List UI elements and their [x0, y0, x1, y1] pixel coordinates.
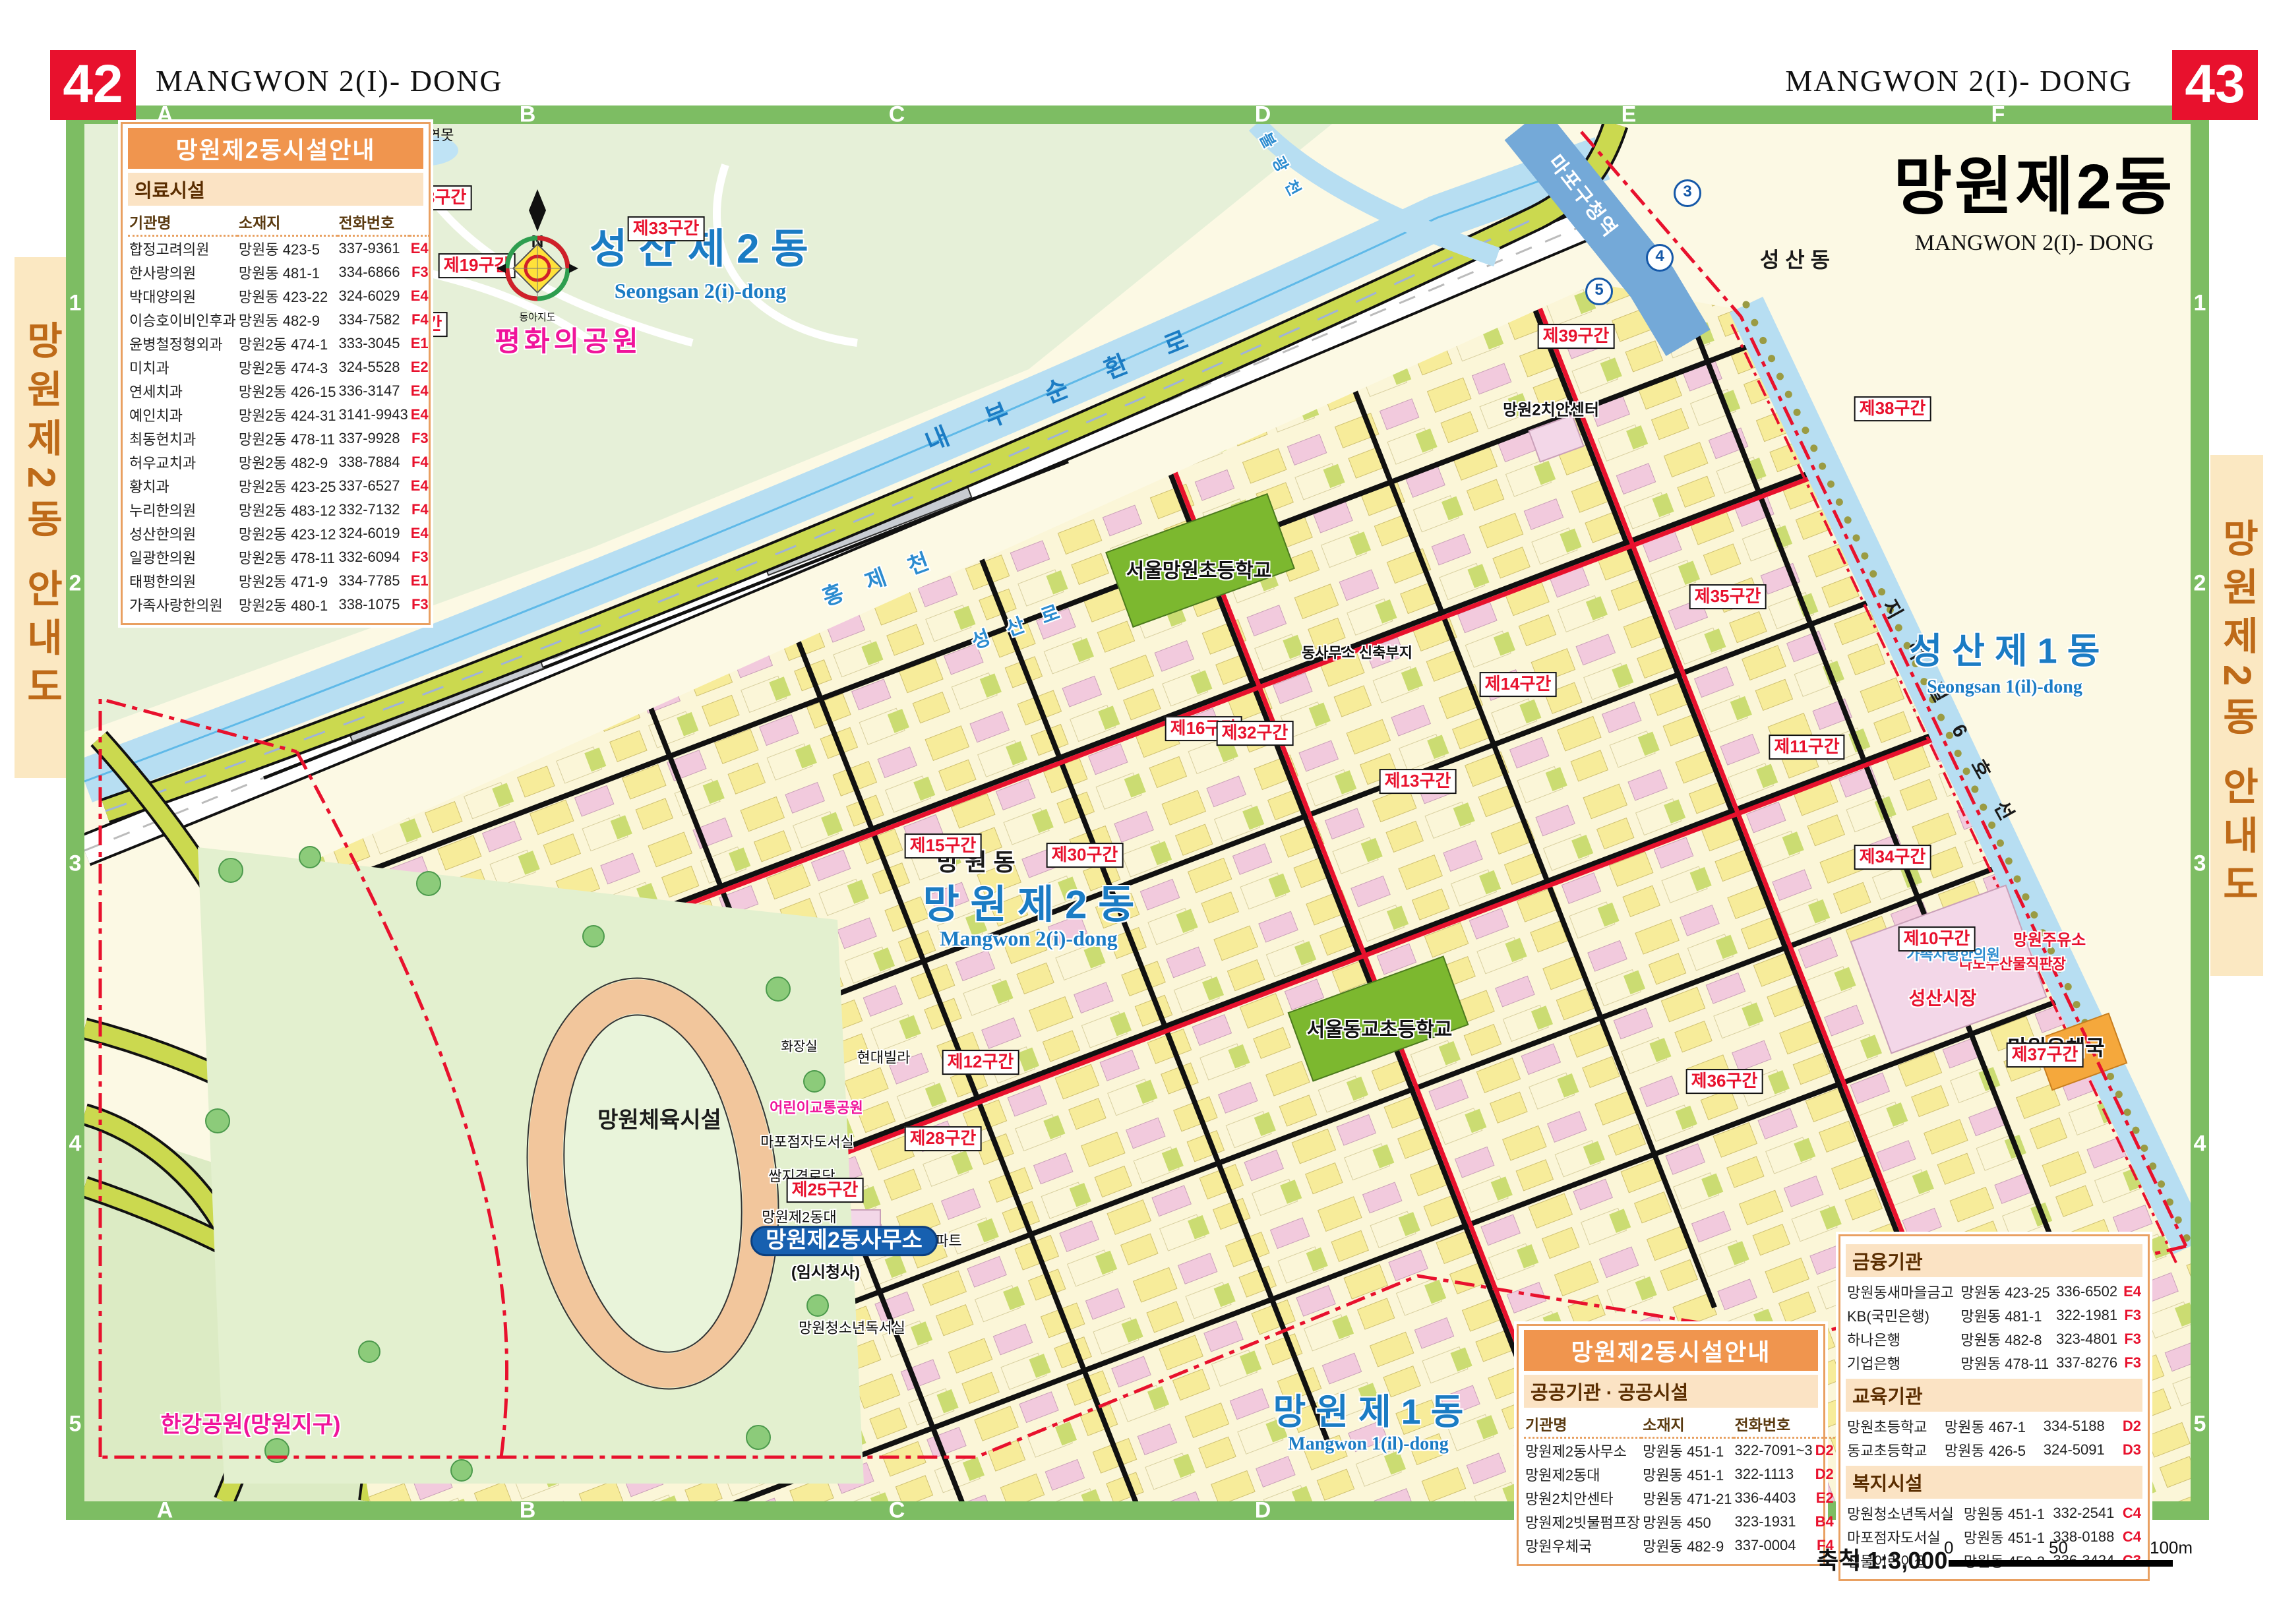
grid-ref: D3 [2117, 1438, 2142, 1462]
grid-col-label: C [889, 102, 905, 128]
facility-row: 망원2치안센타망원동 471-21336-4403E2 [1524, 1486, 1835, 1510]
facility-address: 망원2동 423-25 [237, 474, 338, 498]
section-range-marker: 제39구간 [1538, 324, 1615, 349]
public-facilities-table: 망원제2동시설안내공공기관 · 공공시설기관명소재지전화번호망원제2동사무소망원… [1517, 1324, 1825, 1566]
grid-ref: E4 [409, 236, 430, 261]
grid-row-label: 1 [69, 291, 82, 316]
grid-ref: D2 [1814, 1438, 1835, 1463]
grid-ref: F3 [409, 545, 430, 569]
facility-section-header: 공공기관 · 공공시설 [1524, 1375, 1818, 1408]
left-page-number: 42 [50, 50, 136, 120]
facility-address: 망원2동 423-12 [237, 522, 338, 545]
facility-name: 이승호이비인후과 [128, 308, 237, 332]
grid-ref: E4 [2121, 1280, 2142, 1304]
facility-name: 성산한의원 [128, 522, 237, 545]
section-range-marker: 제34구간 [1854, 845, 1931, 870]
section-range-marker: 제33구간 [628, 216, 705, 241]
facility-section-header: 의료시설 [128, 173, 423, 206]
map-label: 망 원 제 2 동 [923, 884, 1135, 926]
facility-row: 미치과망원2동 474-3324-5528E2 [128, 355, 430, 379]
facility-row: 태평한의원망원2동 471-9334-7785E1 [128, 569, 430, 593]
facility-phone: 322-7091~3 [1734, 1438, 1814, 1463]
facility-phone: 337-9361 [338, 236, 409, 261]
facility-section-header: 금융기관 [1846, 1244, 2142, 1277]
facility-address: 망원동 482-8 [1959, 1327, 2055, 1351]
column-header: 전화번호 [338, 208, 430, 236]
facility-phone: 338-1075 [338, 593, 409, 617]
facility-phone: 337-0004 [1734, 1534, 1814, 1557]
section-range-marker: 제37구간 [2007, 1042, 2084, 1068]
grid-ref: E4 [409, 403, 430, 427]
map-label: 망원주유소 [2013, 932, 2086, 948]
map-label: (임시청사) [791, 1264, 860, 1280]
grid-ref: F3 [409, 593, 430, 617]
grid-ref: F3 [409, 427, 430, 450]
grid-row-label: 2 [69, 571, 82, 597]
facility-name: 망원제2빗물펌프장 [1524, 1510, 1641, 1534]
grid-row-label: 2 [2194, 571, 2206, 597]
facility-phone: 324-5528 [338, 355, 409, 379]
facility-row: 일광한의원망원2동 478-11332-6094F3 [128, 545, 430, 569]
facility-name: 망원제2동대 [1524, 1462, 1641, 1486]
map-label: 서울동교초등학교 [1307, 1019, 1453, 1040]
facility-row: 허우교치과망원2동 482-9338-7884F4 [128, 450, 430, 474]
facility-name: 윤병철정형외과 [128, 332, 237, 355]
map-label: 망원체육시설 [597, 1109, 721, 1133]
facility-row: 망원제2동대망원동 451-1322-1113D2 [1524, 1462, 1835, 1486]
facility-phone: 334-6866 [338, 260, 409, 284]
facility-phone: 334-5188 [2042, 1414, 2117, 1438]
section-range-marker: 제30구간 [1046, 843, 1124, 868]
facility-address: 망원2동 424-31 [237, 403, 338, 427]
facility-row: 이승호이비인후과망원동 482-9334-7582F4 [128, 308, 430, 332]
facility-address: 망원2동 483-12 [237, 498, 338, 522]
grid-col-label: F [1991, 102, 2005, 128]
facility-row: 합정고려의원망원동 423-5337-9361E4 [128, 236, 430, 261]
facility-row: 윤병철정형외과망원2동 474-1333-3045E1 [128, 332, 430, 355]
facility-name: 누리한의원 [128, 498, 237, 522]
facility-guide-title: 망원제2동시설안내 [1524, 1330, 1818, 1371]
facility-address: 망원2동 471-9 [237, 569, 338, 593]
facility-phone: 337-6527 [338, 474, 409, 498]
grid-row-label: 4 [2194, 1131, 2206, 1157]
grid-ref: E4 [409, 474, 430, 498]
medical-facilities-table: 망원제2동시설안내의료시설기관명소재지전화번호합정고려의원망원동 423-533… [121, 122, 431, 625]
facility-phone: 332-2541 [2051, 1501, 2119, 1525]
facility-phone: 332-7132 [338, 498, 409, 522]
map-label: 화장실 [781, 1040, 817, 1054]
facility-address: 망원동 478-11 [1959, 1351, 2055, 1375]
left-banner-text: 망원제2동 안내도 [13, 320, 69, 715]
facility-name: 태평한의원 [128, 569, 237, 593]
facility-address: 망원동 423-22 [237, 284, 338, 308]
grid-ref: E2 [409, 355, 430, 379]
grid-row-label: 4 [69, 1131, 82, 1157]
facility-row: 박대양의원망원동 423-22324-6029E4 [128, 284, 430, 308]
map-label: Mangwon 1(il)-dong [1288, 1434, 1448, 1453]
facility-phone: 333-3045 [338, 332, 409, 355]
facility-name: 망원2치안센타 [1524, 1486, 1641, 1510]
right-banner-text: 망원제2동 안내도 [2209, 518, 2264, 913]
facility-name: 예인치과 [128, 403, 237, 427]
section-range-marker: 제13구간 [1380, 769, 1457, 794]
facility-address: 망원동 450 [1641, 1510, 1733, 1534]
map-label: 어린이교통공원 [770, 1100, 863, 1115]
map-label: 성 산 제 1 동 [1910, 633, 2100, 671]
facility-row: 기업은행망원동 478-11337-8276F3 [1846, 1351, 2142, 1375]
facility-row: 동교초등학교망원동 426-5324-5091D3 [1846, 1438, 2142, 1462]
facility-phone: 337-9928 [338, 427, 409, 450]
grid-ref: F4 [409, 308, 430, 332]
facility-address: 망원동 481-1 [237, 260, 338, 284]
grid-ref: D2 [1814, 1462, 1835, 1486]
facility-section-header: 복지시설 [1846, 1466, 2142, 1499]
facility-address: 망원2동 426-15 [237, 379, 338, 403]
scale-tick-label: 0 [1944, 1538, 1953, 1558]
map-label: 마포점자도서실 [760, 1134, 854, 1149]
facility-row: 연세치과망원2동 426-15336-3147E4 [128, 379, 430, 403]
facility-name: 허우교치과 [128, 450, 237, 474]
frame-left [66, 105, 84, 1520]
facility-name: 망원우체국 [1524, 1534, 1641, 1557]
facility-name: 하나은행 [1846, 1327, 1959, 1351]
facility-table: 망원초등학교망원동 467-1334-5188D2동교초등학교망원동 426-5… [1846, 1414, 2142, 1462]
facility-row: 성산한의원망원2동 423-12324-6019E4 [128, 522, 430, 545]
map-label: 망원제2동대 [762, 1209, 836, 1224]
map-label: 평화의공원 [495, 327, 642, 356]
grid-ref: E4 [409, 379, 430, 403]
map-label: 성 산 동 [1760, 249, 1830, 272]
facility-row: 예인치과망원2동 424-313141-9943E4 [128, 403, 430, 427]
grid-ref: F4 [409, 498, 430, 522]
grid-ref: F3 [2121, 1304, 2142, 1327]
grid-col-label: D [1255, 1498, 1271, 1524]
facility-row: 망원청소년독서실망원동 451-1332-2541C4 [1846, 1501, 2142, 1525]
map-title-block: 망원제2동 MANGWON 2(I)- DONG [1893, 135, 2176, 256]
frame-top [66, 105, 2209, 124]
facility-phone: 324-5091 [2042, 1438, 2117, 1462]
map-label: Seongsan 1(il)-dong [1927, 677, 2082, 696]
grid-ref: E4 [409, 522, 430, 545]
facility-name: 망원동새마을금고 [1846, 1280, 1959, 1304]
grid-row-label: 5 [69, 1412, 82, 1437]
facility-address: 망원2동 478-11 [237, 427, 338, 450]
facility-name: 일광한의원 [128, 545, 237, 569]
facility-phone: 336-6502 [2055, 1280, 2121, 1304]
facility-address: 망원2동 474-1 [237, 332, 338, 355]
facility-address: 망원동 482-9 [237, 308, 338, 332]
facility-phone: 3141-9943 [338, 403, 409, 427]
grid-col-label: C [889, 1498, 905, 1524]
frame-right [2191, 105, 2209, 1520]
facility-row: 하나은행망원동 482-8323-4801F3 [1846, 1327, 2142, 1351]
facility-phone: 322-1113 [1734, 1462, 1814, 1486]
map-label: 한강공원(망원지구) [161, 1414, 341, 1437]
facility-row: 망원제2빗물펌프장망원동 450323-1931B4 [1524, 1510, 1835, 1534]
facility-phone: 336-4403 [1734, 1486, 1814, 1510]
facility-address: 망원동 423-5 [237, 236, 338, 261]
facility-address: 망원2동 482-9 [237, 450, 338, 474]
facility-phone: 323-4801 [2055, 1327, 2121, 1351]
facility-address: 망원동 482-9 [1641, 1534, 1733, 1557]
atlas-page: 42 MANGWON 2(I)- DONG 43 MANGWON 2(I)- D… [0, 0, 2275, 1624]
facility-phone: 334-7785 [338, 569, 409, 593]
facility-address: 망원2동 480-1 [237, 593, 338, 617]
grid-row-label: 3 [69, 851, 82, 877]
scale-bar: 축척 1:3,000 050100m [1817, 1542, 2186, 1576]
column-header: 기관명 [128, 208, 237, 236]
facility-row: 망원우체국망원동 482-9337-0004F4 [1524, 1534, 1835, 1557]
right-edge-banner: 망원제2동 안내도 [2210, 455, 2263, 976]
facility-phone: 322-1981 [2055, 1304, 2121, 1327]
facility-guide-title: 망원제2동시설안내 [128, 128, 423, 169]
facility-row: 황치과망원2동 423-25337-6527E4 [128, 474, 430, 498]
grid-ref: E2 [1814, 1486, 1835, 1510]
facility-row: 망원동새마을금고망원동 423-25336-6502E4 [1846, 1280, 2142, 1304]
facility-phone: 334-7582 [338, 308, 409, 332]
facility-name: 최동헌치과 [128, 427, 237, 450]
facility-name: 기업은행 [1846, 1351, 1959, 1375]
facility-address: 망원동 423-25 [1959, 1280, 2055, 1304]
section-range-marker: 제15구간 [905, 833, 982, 858]
facility-address: 망원2동 478-11 [237, 545, 338, 569]
facility-phone: 336-3147 [338, 379, 409, 403]
facility-name: 망원제2동사무소 [1524, 1438, 1641, 1463]
facility-address: 망원동 426-5 [1943, 1438, 2042, 1462]
facility-address: 망원동 451-1 [1641, 1438, 1733, 1463]
grid-col-label: B [520, 1498, 536, 1524]
scale-bar-line [1949, 1560, 2173, 1567]
facility-phone: 324-6029 [338, 284, 409, 308]
facility-row: 망원초등학교망원동 467-1334-5188D2 [1846, 1414, 2142, 1438]
grid-col-label: A [157, 1498, 173, 1524]
column-header: 소재지 [237, 208, 338, 236]
map-subtitle: MANGWON 2(I)- DONG [1893, 231, 2176, 256]
grid-row-label: 5 [2194, 1412, 2206, 1437]
map-label: 망원청소년독서실 [799, 1320, 905, 1335]
right-page-number: 43 [2172, 50, 2258, 120]
grid-ref: C4 [2120, 1501, 2142, 1525]
facility-row: 가족사랑한의원망원2동 480-1338-1075F3 [128, 593, 430, 617]
grid-col-label: E [1622, 102, 1637, 128]
left-page-header: MANGWON 2(I)- DONG [156, 63, 503, 98]
scale-tick-label: 100m [2150, 1538, 2193, 1558]
facility-address: 망원동 467-1 [1943, 1414, 2042, 1438]
facility-name: 황치과 [128, 474, 237, 498]
facility-phone: 338-7884 [338, 450, 409, 474]
facility-section-header: 교육기관 [1846, 1379, 2142, 1412]
station-exit-number: 4 [1646, 244, 1674, 272]
facility-phone: 324-6019 [338, 522, 409, 545]
map-label: 망원2치안센터 [1503, 402, 1599, 418]
finance-education-welfare-table: 금융기관망원동새마을금고망원동 423-25336-6502E4KB(국민은행)… [1838, 1234, 2150, 1581]
section-range-marker: 제36구간 [1686, 1069, 1763, 1094]
map-label: 현대빌라 [857, 1050, 911, 1065]
facility-name: 동교초등학교 [1846, 1438, 1943, 1462]
facility-phone: 323-1931 [1734, 1510, 1814, 1534]
facility-address: 망원동 481-1 [1959, 1304, 2055, 1327]
grid-ref: E1 [409, 569, 430, 593]
right-page-header: MANGWON 2(I)- DONG [1785, 63, 2133, 98]
column-header: 소재지 [1641, 1410, 1733, 1438]
facility-name: 망원초등학교 [1846, 1414, 1943, 1438]
grid-col-label: B [520, 102, 536, 128]
facility-name: 한사랑의원 [128, 260, 237, 284]
grid-ref: F3 [2121, 1351, 2142, 1375]
facility-phone: 337-8276 [2055, 1351, 2121, 1375]
facility-row: 최동헌치과망원2동 478-11337-9928F3 [128, 427, 430, 450]
section-range-marker: 제10구간 [1898, 926, 1976, 951]
dong-office-label: 망원제2동사무소 [750, 1226, 938, 1256]
facility-name: 미치과 [128, 355, 237, 379]
map-label: Mangwon 2(i)-dong [940, 928, 1117, 950]
facility-row: 누리한의원망원2동 483-12332-7132F4 [128, 498, 430, 522]
facility-address: 망원동 471-21 [1641, 1486, 1733, 1510]
section-range-marker: 제14구간 [1480, 672, 1557, 697]
section-range-marker: 제35구간 [1689, 584, 1767, 609]
map-label: 성산시장 [1908, 988, 1976, 1007]
facility-address: 망원동 451-1 [1962, 1501, 2051, 1525]
scale-tick-label: 50 [2049, 1538, 2068, 1558]
facility-row: KB(국민은행)망원동 481-1322-1981F3 [1846, 1304, 2142, 1327]
section-range-marker: 제28구간 [905, 1126, 982, 1151]
grid-ref: F3 [2121, 1327, 2142, 1351]
grid-ref: F3 [409, 260, 430, 284]
map-label: 서울망원초등학교 [1126, 560, 1272, 582]
section-range-marker: 제25구간 [787, 1178, 864, 1203]
facility-phone: 332-6094 [338, 545, 409, 569]
facility-row: 망원제2동사무소망원동 451-1322-7091~3D2 [1524, 1438, 1835, 1463]
facility-name: KB(국민은행) [1846, 1304, 1959, 1327]
section-range-marker: 제11구간 [1769, 735, 1844, 760]
grid-ref: B4 [1814, 1510, 1835, 1534]
grid-row-label: 3 [2194, 851, 2206, 877]
scale-label: 축척 1:3,000 [1817, 1542, 1947, 1576]
column-header: 기관명 [1524, 1410, 1641, 1438]
grid-row-label: 1 [2194, 291, 2206, 316]
facility-row: 한사랑의원망원동 481-1334-6866F3 [128, 260, 430, 284]
grid-ref: E4 [409, 284, 430, 308]
section-range-marker: 제12구간 [942, 1050, 1019, 1075]
map-label: 동사무소 신축부지 [1302, 645, 1412, 660]
facility-name: 합정고려의원 [128, 236, 237, 261]
facility-table: 기관명소재지전화번호망원제2동사무소망원동 451-1322-7091~3D2망… [1524, 1410, 1835, 1557]
section-range-marker: 제38구간 [1854, 396, 1931, 421]
facility-name: 박대양의원 [128, 284, 237, 308]
section-range-marker: 제32구간 [1217, 721, 1294, 746]
grid-ref: F4 [409, 450, 430, 474]
facility-table: 기관명소재지전화번호합정고려의원망원동 423-5337-9361E4한사랑의원… [128, 208, 430, 617]
station-exit-number: 3 [1674, 179, 1701, 207]
facility-name: 연세치과 [128, 379, 237, 403]
facility-name: 가족사랑한의원 [128, 593, 237, 617]
map-title: 망원제2동 [1893, 135, 2176, 227]
grid-ref: E1 [409, 332, 430, 355]
column-header: 전화번호 [1734, 1410, 1835, 1438]
facility-name: 망원청소년독서실 [1846, 1501, 1962, 1525]
map-label: 망 원 제 1 동 [1273, 1394, 1464, 1431]
grid-ref: D2 [2117, 1414, 2142, 1438]
compass-rose: N [488, 188, 587, 307]
facility-address: 망원2동 474-3 [237, 355, 338, 379]
station-exit-number: 5 [1585, 278, 1613, 305]
facility-address: 망원동 451-1 [1641, 1462, 1733, 1486]
map-label: Seongsan 2(i)-dong [615, 280, 787, 303]
map-label: 동아지도 [519, 313, 555, 323]
facility-table: 망원동새마을금고망원동 423-25336-6502E4KB(국민은행)망원동 … [1846, 1280, 2142, 1375]
grid-col-label: D [1255, 102, 1271, 128]
left-edge-banner: 망원제2동 안내도 [15, 257, 67, 778]
